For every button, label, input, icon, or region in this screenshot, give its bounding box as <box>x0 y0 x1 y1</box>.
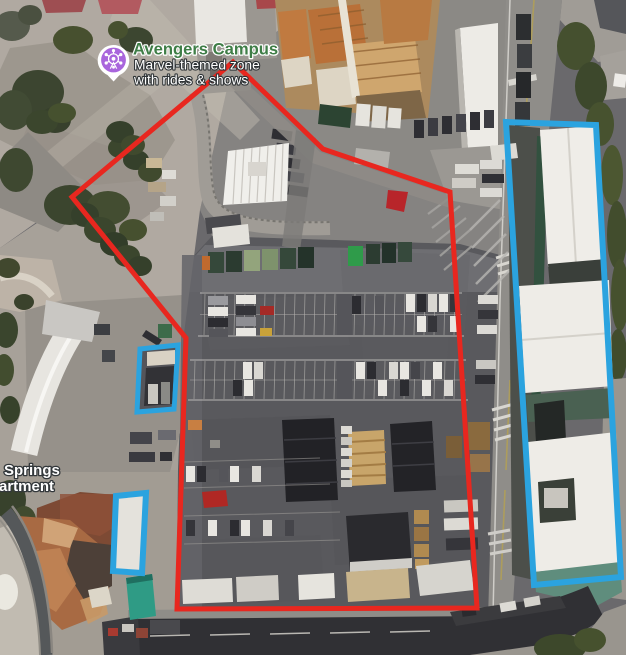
svg-text:artment: artment <box>0 478 54 495</box>
svg-text:Springs: Springs <box>4 462 60 479</box>
svg-text:Avengers Campus: Avengers Campus <box>133 40 278 59</box>
svg-text:Marvel-themed zone: Marvel-themed zone <box>134 58 260 73</box>
svg-text:with rides & shows: with rides & shows <box>133 73 248 88</box>
